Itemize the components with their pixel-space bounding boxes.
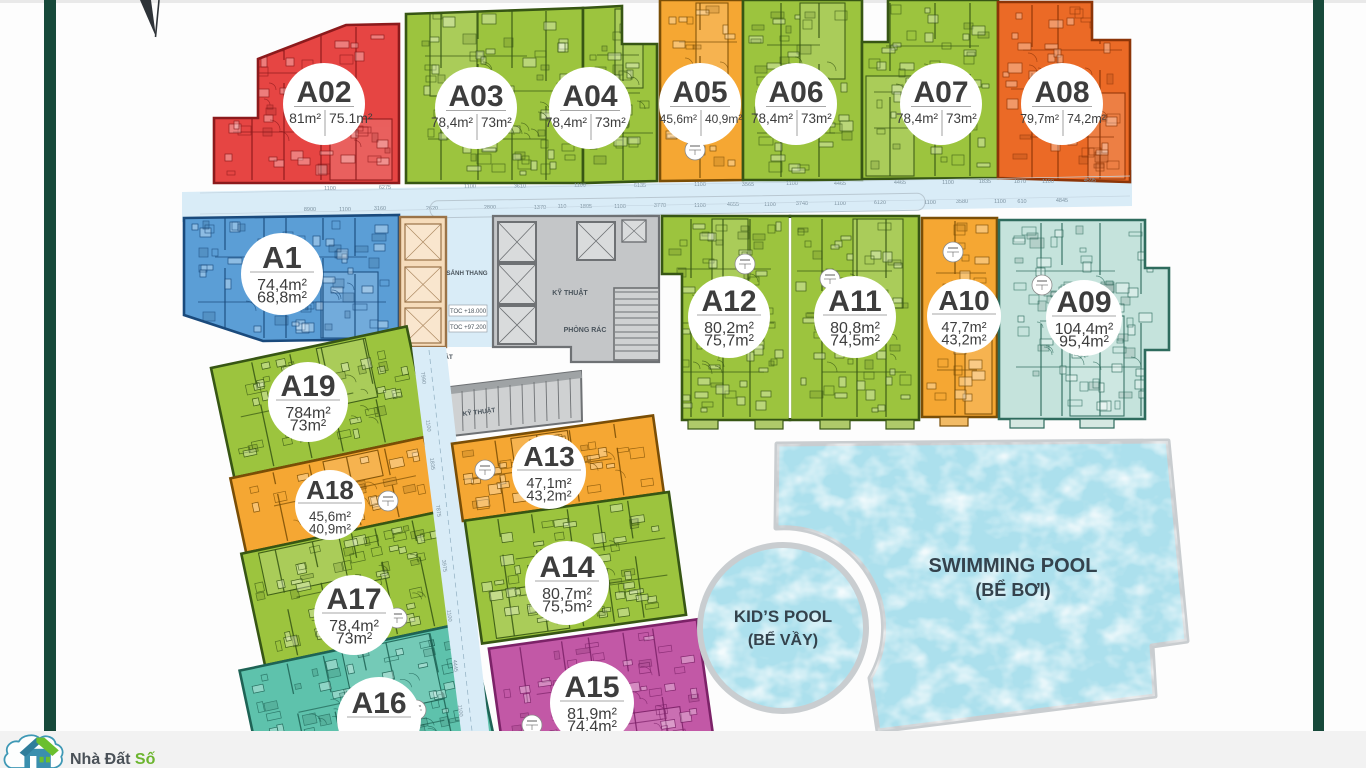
svg-text:3580: 3580 xyxy=(956,199,968,205)
svg-text:40,9m²: 40,9m² xyxy=(309,522,352,537)
svg-text:43,2m²: 43,2m² xyxy=(526,489,571,505)
svg-text:1100: 1100 xyxy=(1042,179,1054,185)
svg-text:A09: A09 xyxy=(1056,286,1111,319)
svg-text:(BỂ BƠI): (BỂ BƠI) xyxy=(975,579,1050,600)
svg-text:Nhà Đất Số: Nhà Đất Số xyxy=(70,751,156,768)
svg-text:1100: 1100 xyxy=(614,204,626,210)
svg-text:95,4m²: 95,4m² xyxy=(1059,334,1109,351)
svg-text:75,7m²: 75,7m² xyxy=(704,333,754,350)
svg-text:73m²: 73m² xyxy=(801,111,832,126)
svg-text:6275: 6275 xyxy=(379,185,391,191)
svg-text:73m²: 73m² xyxy=(481,115,512,130)
svg-text:6135: 6135 xyxy=(634,183,646,189)
svg-text:1805: 1805 xyxy=(580,204,592,210)
svg-text:78,4m²: 78,4m² xyxy=(896,111,939,126)
svg-text:A13: A13 xyxy=(523,441,574,472)
svg-text:75.1m²: 75.1m² xyxy=(329,110,373,126)
svg-text:73m²: 73m² xyxy=(336,631,373,648)
svg-text:45,6m²: 45,6m² xyxy=(660,112,697,126)
svg-text:1100: 1100 xyxy=(694,182,706,188)
svg-text:1100: 1100 xyxy=(339,207,351,213)
svg-text:74,5m²: 74,5m² xyxy=(830,333,880,350)
svg-text:3740: 3740 xyxy=(796,201,808,207)
svg-text:PHÒNG RÁC: PHÒNG RÁC xyxy=(564,325,607,334)
svg-text:75,5m²: 75,5m² xyxy=(542,599,592,616)
svg-text:81m²: 81m² xyxy=(289,110,321,126)
svg-text:73m²: 73m² xyxy=(290,418,327,435)
svg-text:1100: 1100 xyxy=(942,180,954,186)
svg-text:610: 610 xyxy=(1017,199,1026,205)
svg-text:4845: 4845 xyxy=(1056,198,1068,204)
svg-text:A10: A10 xyxy=(938,285,989,316)
svg-text:A12: A12 xyxy=(701,285,756,318)
svg-text:A14: A14 xyxy=(539,551,594,584)
svg-text:73m²: 73m² xyxy=(595,115,626,130)
svg-text:4465: 4465 xyxy=(834,181,846,187)
svg-text:A18: A18 xyxy=(306,475,354,505)
svg-text:TOC +97.200: TOC +97.200 xyxy=(450,325,487,331)
svg-text:TOC +18.000: TOC +18.000 xyxy=(450,309,487,315)
svg-text:1870: 1870 xyxy=(1014,179,1026,185)
svg-text:A04: A04 xyxy=(562,80,617,113)
svg-text:A1: A1 xyxy=(262,240,302,275)
svg-text:A19: A19 xyxy=(280,370,335,403)
svg-text:KỸ THUẬT: KỸ THUẬT xyxy=(552,288,588,297)
svg-text:43,2m²: 43,2m² xyxy=(941,333,986,349)
svg-text:A08: A08 xyxy=(1034,76,1089,109)
svg-text:KID’S POOL: KID’S POOL xyxy=(734,607,832,626)
svg-text:A03: A03 xyxy=(448,80,503,113)
svg-text:73m²: 73m² xyxy=(946,111,977,126)
svg-text:3160: 3160 xyxy=(374,206,386,212)
svg-text:A16: A16 xyxy=(351,687,406,720)
svg-text:SẢNH THANG: SẢNH THANG xyxy=(446,270,487,277)
svg-text:1100: 1100 xyxy=(464,184,476,190)
svg-text:4595: 4595 xyxy=(1084,178,1096,184)
svg-text:1100: 1100 xyxy=(324,186,336,192)
svg-text:2620: 2620 xyxy=(426,206,438,212)
svg-text:A07: A07 xyxy=(913,76,968,109)
svg-text:78,4m²: 78,4m² xyxy=(431,115,474,130)
svg-text:68,8m²: 68,8m² xyxy=(257,290,307,307)
svg-text:40,9m²: 40,9m² xyxy=(705,112,742,126)
svg-text:A15: A15 xyxy=(564,671,619,704)
svg-text:79,7m²: 79,7m² xyxy=(1020,112,1059,126)
svg-text:1100: 1100 xyxy=(994,199,1006,205)
svg-text:(BỂ VẦY): (BỂ VẦY) xyxy=(748,630,818,649)
svg-text:A06: A06 xyxy=(768,76,823,109)
svg-text:1835: 1835 xyxy=(979,179,991,185)
svg-text:1370: 1370 xyxy=(534,205,546,211)
svg-text:A11: A11 xyxy=(828,285,881,318)
svg-text:1100: 1100 xyxy=(924,200,936,206)
svg-text:78,4m²: 78,4m² xyxy=(545,115,588,130)
svg-text:78,4m²: 78,4m² xyxy=(751,111,794,126)
svg-text:4465: 4465 xyxy=(894,180,906,186)
svg-text:A17: A17 xyxy=(326,583,381,616)
svg-text:3770: 3770 xyxy=(654,203,666,209)
svg-text:A05: A05 xyxy=(672,76,727,109)
svg-text:SWIMMING POOL: SWIMMING POOL xyxy=(929,555,1098,577)
svg-text:74,2m²: 74,2m² xyxy=(1067,112,1106,126)
svg-text:A02: A02 xyxy=(296,76,351,109)
svg-text:4655: 4655 xyxy=(727,202,739,208)
